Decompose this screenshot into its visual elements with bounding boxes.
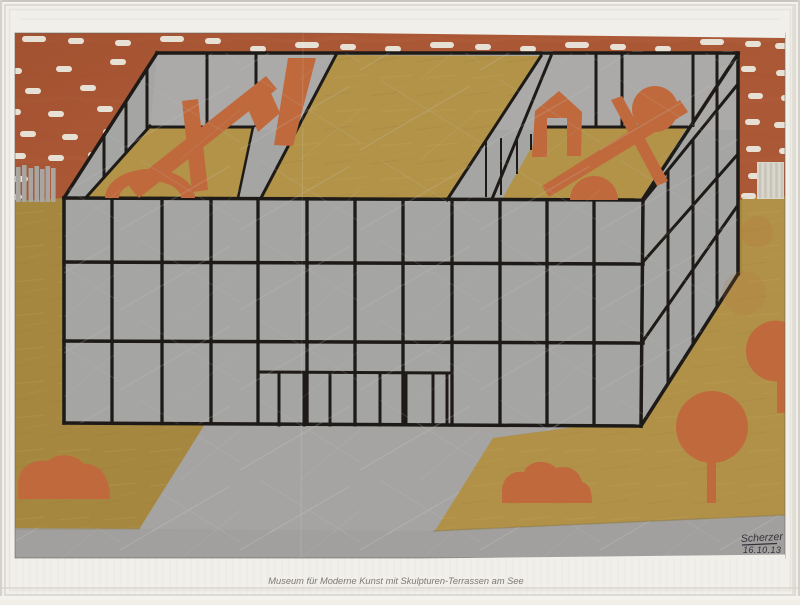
svg-text:Scherzer: Scherzer [741,531,784,545]
svg-text:Museum für Moderne Kunst mit S: Museum für Moderne Kunst mit Skulpturen-… [268,576,523,586]
svg-text:16.10.13: 16.10.13 [743,545,781,555]
